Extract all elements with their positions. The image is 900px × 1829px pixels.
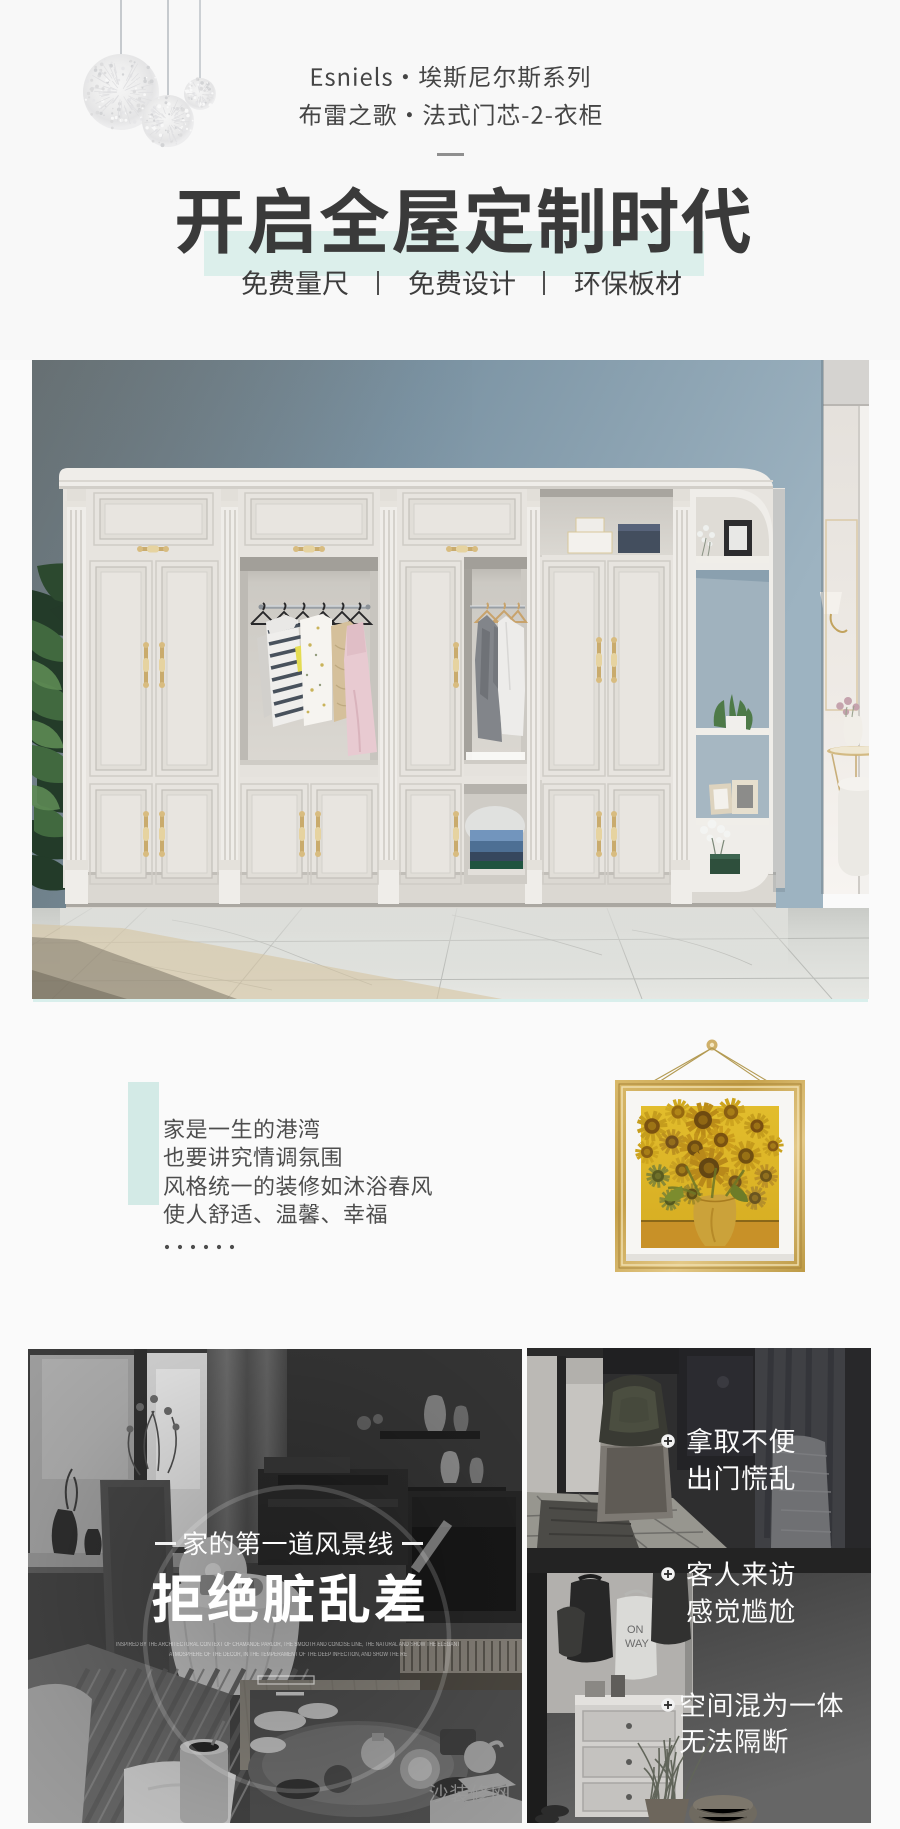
svg-text:ON: ON [627, 1624, 644, 1636]
svg-text:INSPIRED BY THE ARCHITECTURAL: INSPIRED BY THE ARCHITECTURAL CONTEXT OF… [116, 1642, 460, 1648]
svg-text:ATMOSPHERE OF THE DECOR, IN TH: ATMOSPHERE OF THE DECOR, IN THE TEMPERAM… [169, 1652, 407, 1658]
svg-text:WAY: WAY [625, 1638, 649, 1650]
